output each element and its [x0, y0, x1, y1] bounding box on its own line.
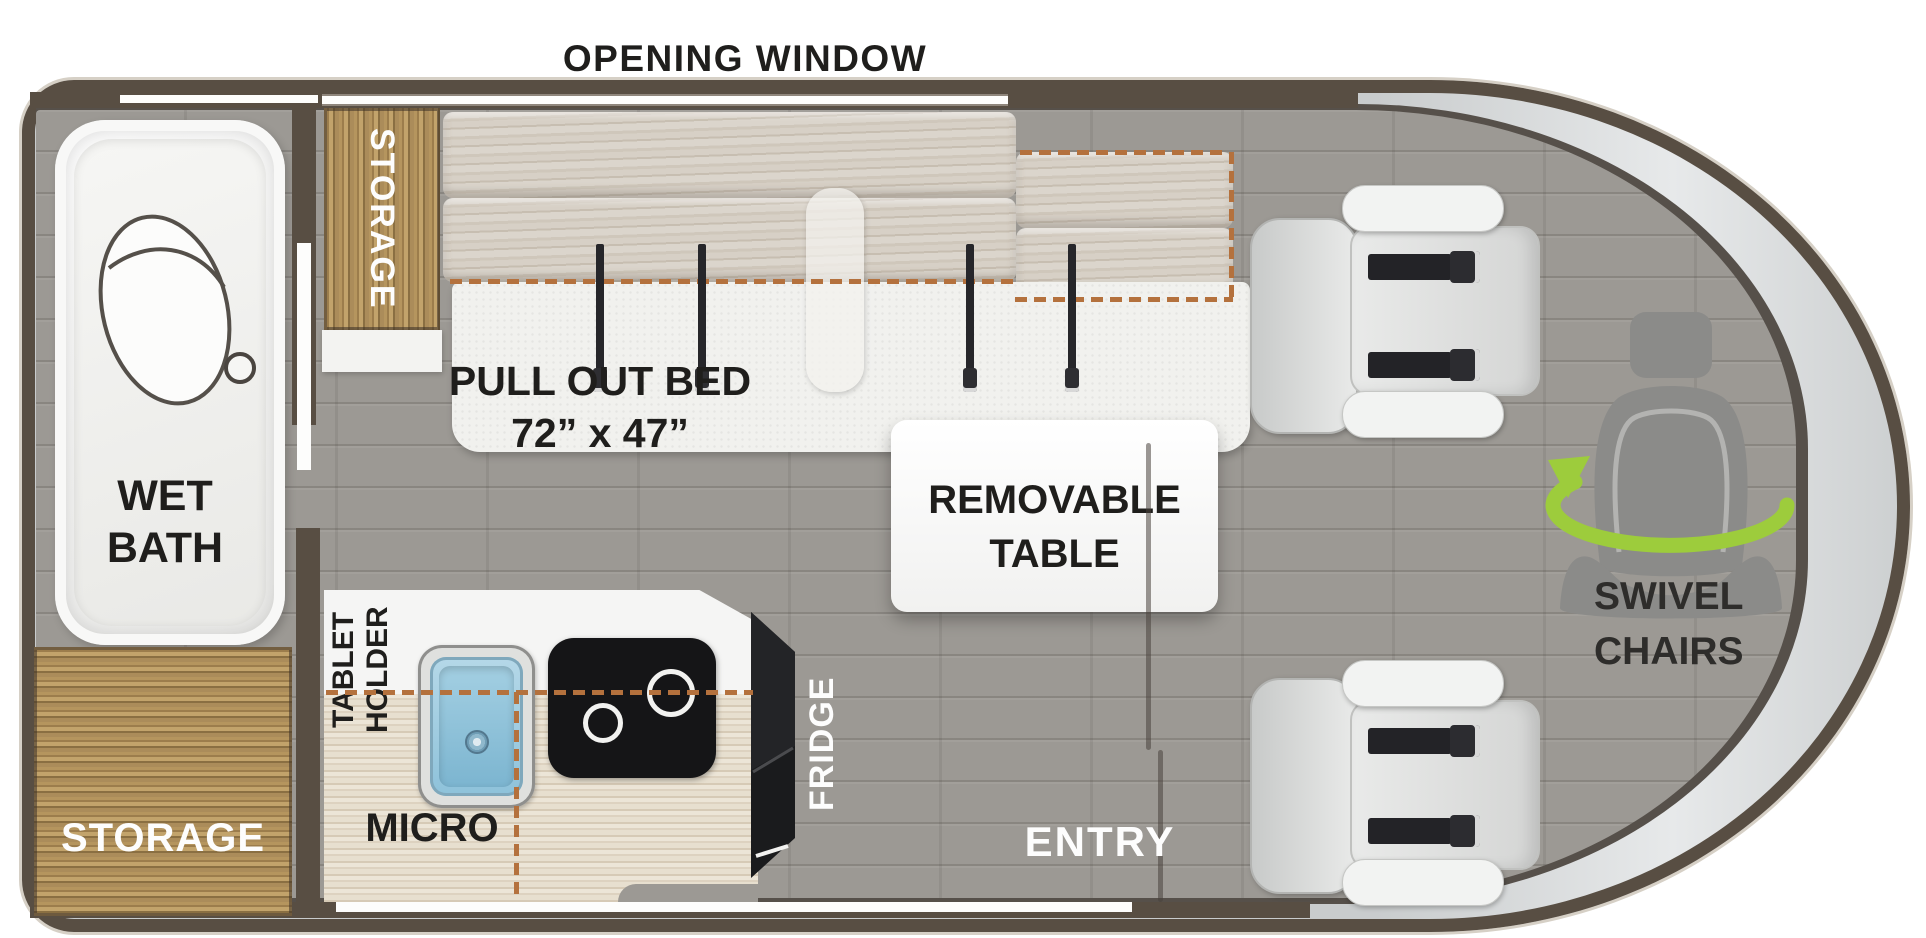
floorplan-stage: OPENING WINDOW WET BATH STORAGE STORAGE …: [0, 0, 1926, 938]
entry-label: ENTRY: [1010, 818, 1190, 866]
swivel-chairs-label-line1: SWIVEL: [1594, 575, 1744, 619]
swivel-rotation-icon: [0, 0, 1926, 938]
swivel-chairs-label-line2: CHAIRS: [1594, 630, 1744, 674]
seat-icon-headrest: [1630, 312, 1712, 378]
